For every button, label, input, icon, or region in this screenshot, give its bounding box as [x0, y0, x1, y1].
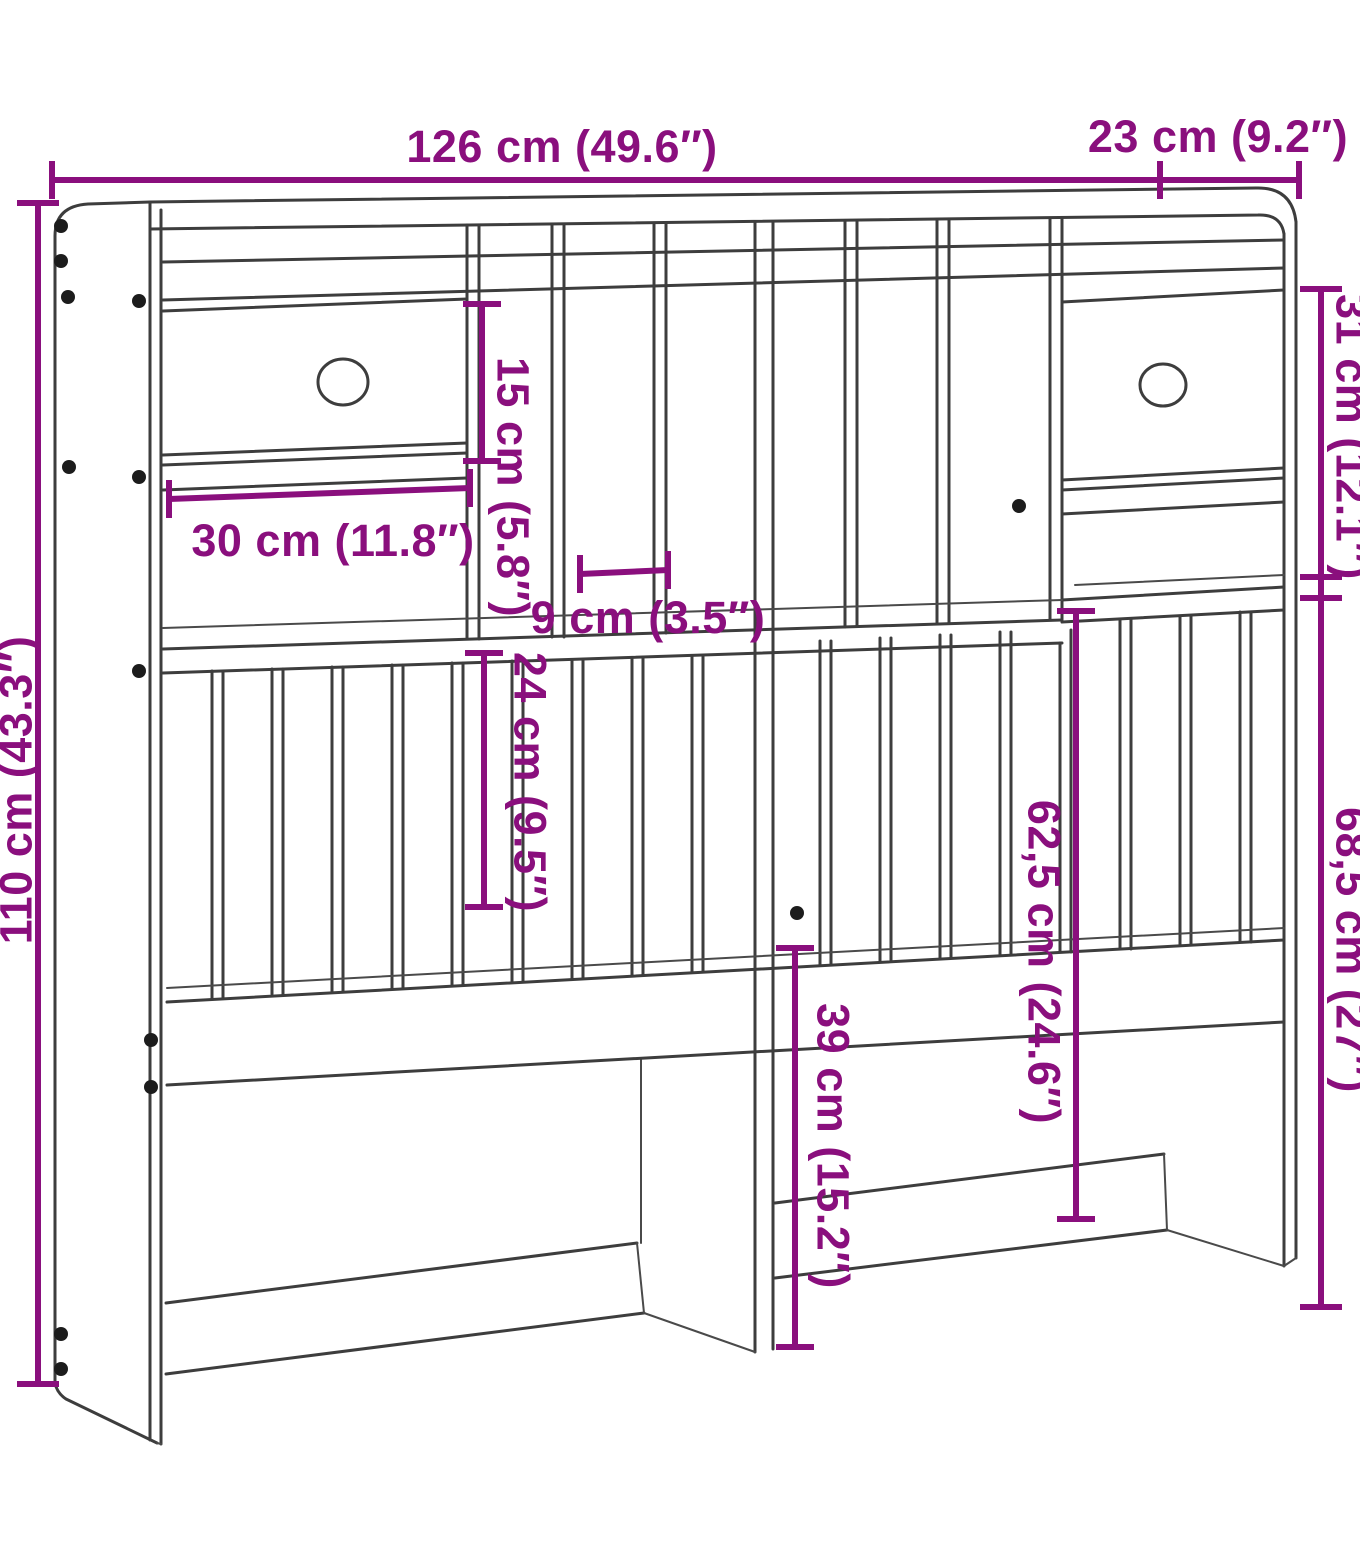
slat-section: [212, 612, 1251, 998]
left-side-panel: [55, 202, 161, 1444]
right-side-panel: [1284, 222, 1296, 1266]
dimension-lines: [17, 161, 1342, 1384]
bottom-clearance-height-label: 39 cm (15.2″): [808, 1003, 859, 1289]
lower-rail: [167, 928, 1284, 1085]
top-board: [150, 188, 1296, 242]
center-support-panel: [641, 222, 773, 1352]
upper-cubby-dividers: [467, 218, 1062, 639]
upper-right-height-label: 31 cm (12.1″): [1327, 294, 1360, 580]
overall-height-label: 110 cm (43.3″): [0, 636, 42, 945]
overall-width-label: 126 cm (49.6″): [406, 121, 717, 172]
left-bottom-plinth: [166, 1243, 644, 1374]
slat-section-height-label: 24 cm (9.5″): [505, 652, 556, 912]
slot-width-label: 9 cm (3.5″): [531, 592, 766, 643]
right-drawer: [1062, 290, 1284, 514]
upper-back-rail: [163, 240, 1284, 300]
drawer-compartment-height-label: 15 cm (5.8″): [488, 357, 539, 617]
mid-section-height-label: 62,5 cm (24.6″): [1019, 800, 1070, 1124]
lower-right-height-label: 68,5 cm (27″): [1327, 807, 1360, 1093]
headboard-dimension-diagram: 126 cm (49.6″) 23 cm (9.2″) 110 cm (43.3…: [0, 0, 1360, 1555]
diagram-canvas: 126 cm (49.6″) 23 cm (9.2″) 110 cm (43.3…: [0, 0, 1360, 1555]
drawer-width-label: 30 cm (11.8″): [191, 515, 474, 566]
dimension-labels: 126 cm (49.6″) 23 cm (9.2″) 110 cm (43.3…: [0, 111, 1360, 1289]
top-depth-label: 23 cm (9.2″): [1088, 111, 1348, 162]
left-drawer: [163, 299, 467, 490]
